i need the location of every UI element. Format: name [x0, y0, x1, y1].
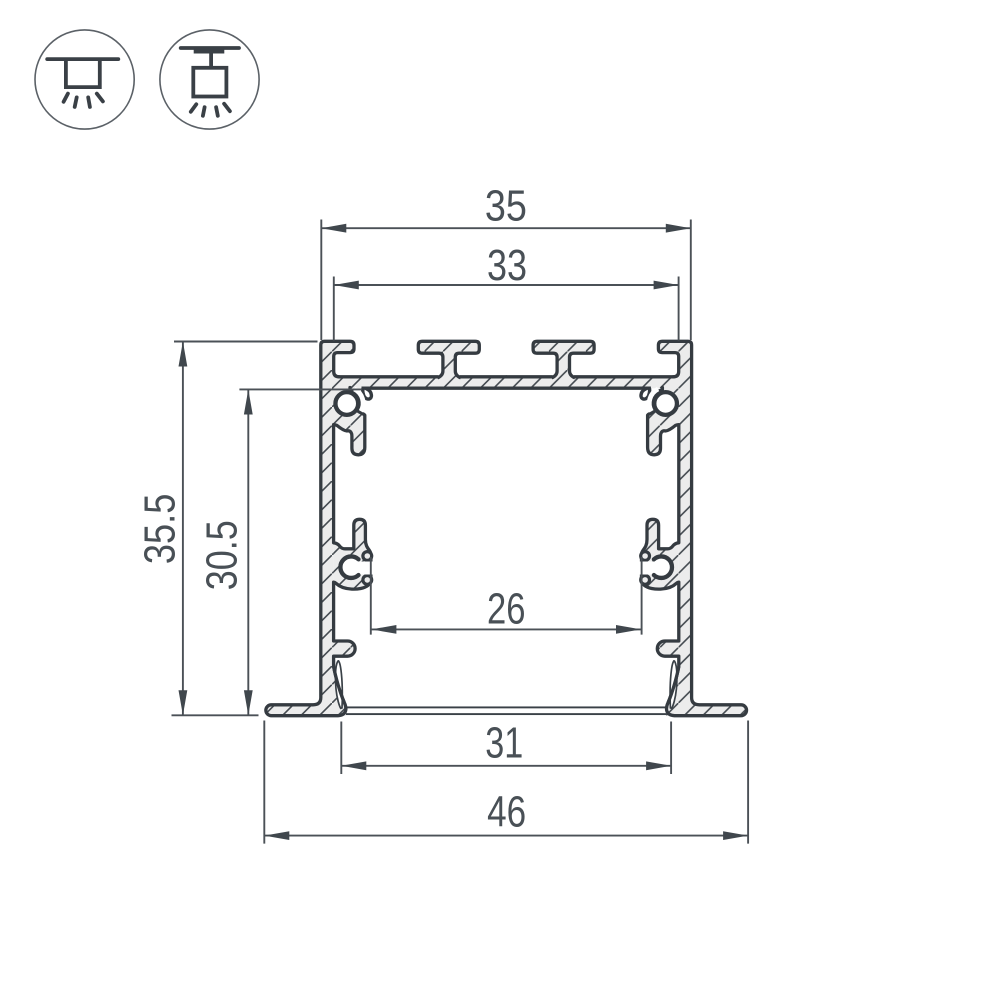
svg-text:31: 31 [485, 720, 523, 768]
svg-text:46: 46 [487, 789, 526, 837]
svg-text:26: 26 [487, 585, 526, 633]
svg-text:35.5: 35.5 [137, 494, 185, 565]
svg-text:35: 35 [485, 183, 527, 231]
svg-text:33: 33 [487, 242, 527, 290]
svg-text:30.5: 30.5 [199, 520, 247, 590]
